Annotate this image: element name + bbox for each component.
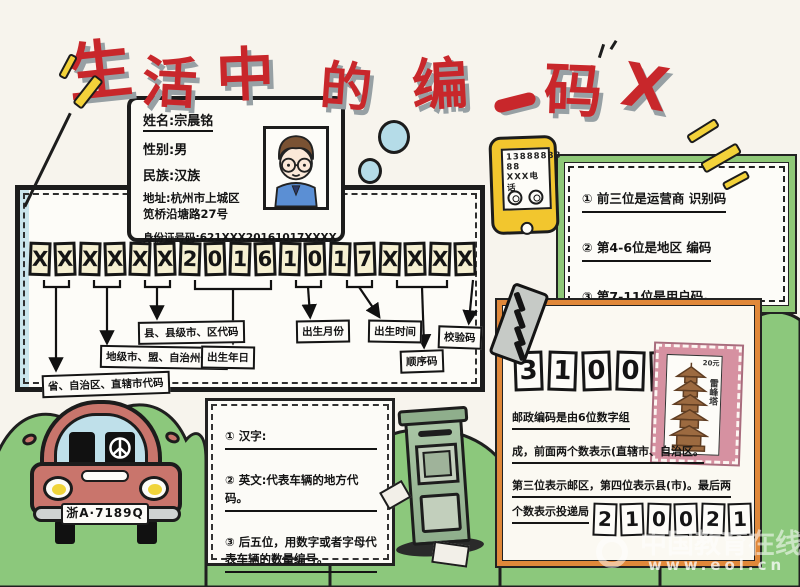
postal-digit-box: 0 [646, 503, 671, 537]
digit-group-label: 顺序码 [400, 349, 444, 374]
postal-digit-box: 0 [581, 351, 611, 392]
postal-digit-box: 1 [727, 503, 752, 537]
plate-note-line: ① 汉字: [225, 428, 377, 450]
mailbox-door [419, 493, 462, 534]
boy-avatar [266, 129, 326, 207]
car-grille [81, 470, 129, 482]
digit-box: X [28, 242, 51, 277]
digit-group-label: 出生时间 [368, 320, 422, 344]
phone-app-icon [528, 189, 544, 205]
postal-description-line: 成，前面两个数表示(直辖市、自治区。 [512, 443, 704, 464]
title-char: 活 [141, 55, 199, 113]
sparkle-icon [686, 118, 720, 144]
postal-description-line: 邮政编码是由6位数字组 [512, 409, 630, 430]
id-card-address: 地址:杭州市上城区 笕桥沿塘路27号 [143, 191, 271, 222]
stamp-price: 20元 [703, 358, 720, 369]
digit-box: X [378, 242, 401, 277]
id-digit-row: XXXXXX20161017XXXX [29, 242, 476, 276]
digit-box: 0 [203, 242, 226, 277]
mobile-note-line: ② 第4-6位是地区 编码 [582, 237, 711, 262]
phone-screen: 13888888 88 XXX电话 [501, 147, 552, 211]
digit-box: 1 [228, 242, 251, 277]
digit-group-label: 出生月份 [296, 320, 350, 344]
hand-drawn-poster: 生活中的编码 X [0, 0, 800, 587]
postal-digit-box: 2 [592, 503, 617, 537]
mobile-phone: 13888888 88 XXX电话 [488, 135, 559, 235]
digit-box: X [53, 242, 76, 277]
car-headlight [139, 476, 169, 501]
mobile-note-line: ① 前三位是运营商 识别码 [582, 188, 726, 213]
mobile-code-box: ① 前三位是运营商 识别码② 第4-6位是地区 编码③ 第7-11位是用户码。 [558, 156, 795, 312]
digit-box: 6 [253, 242, 276, 277]
plate-code-box: ① 汉字:② 英文:代表车辆的地方代码。③ 后五位，用数字或者字母代表车辆的数量… [205, 398, 395, 566]
plate-note-line: ② 英文:代表车辆的地方代码。 [225, 472, 377, 512]
car-drawing: 浙A·7189Q [25, 392, 190, 550]
bubble-doodle [378, 120, 410, 154]
digit-box: X [453, 242, 476, 277]
postal-description-line: 第三位表示邮区，第四位表示县(市)。最后两 [512, 477, 731, 498]
digit-box: 2 [178, 242, 201, 277]
mailbox-drawing [382, 405, 493, 574]
postal-digit-box: 1 [619, 503, 644, 537]
stamp-name: 雷峰塔 [706, 378, 720, 405]
license-plate: 浙A·7189Q [61, 503, 149, 525]
digit-box: 7 [353, 242, 376, 277]
postal-code-box: 310000 20元 雷峰塔 邮政编码是由6位数字 [497, 300, 760, 566]
id-card-number: 身份证号码:621XXX20161017XXXX [143, 230, 331, 245]
title-char: 中 [215, 45, 275, 105]
id-card: 姓名:宗晨铭 性别:男 民族:汉族 地址:杭州市上城区 笕桥沿塘路27号 身份证… [127, 96, 345, 242]
phone-app-icon [507, 190, 523, 206]
car-headlight [43, 476, 73, 501]
digit-group-label: 出生年日 [201, 346, 255, 370]
postal-bottom-row: 个数表示投递局 210021 [512, 503, 752, 536]
title-char: 的 [318, 60, 374, 116]
mobile-code-notes: ① 前三位是运营商 识别码② 第4-6位是地区 编码③ 第7-11位是用户码。 [568, 166, 785, 302]
digit-box: X [428, 242, 451, 277]
digit-box: X [153, 242, 176, 277]
digit-box: X [403, 242, 426, 277]
car-mirror [20, 431, 38, 447]
digit-group-label: 县、县级市、区代码 [138, 320, 245, 345]
postal-digit-box: 2 [700, 503, 725, 537]
postal-description-line: 个数表示投递局 [512, 503, 589, 524]
title-cross-mark: X [617, 54, 673, 121]
title-char: 码 [543, 61, 603, 121]
postal-digit-box: 0 [615, 351, 645, 392]
pen-tick [610, 40, 618, 50]
phone-number-line: 13888888 [506, 151, 545, 163]
envelope-icon [431, 541, 470, 568]
digit-box: 1 [328, 242, 351, 277]
mailbox-panel-window [422, 450, 452, 478]
title-dash-stroke [493, 91, 537, 114]
digit-box: 1 [278, 242, 301, 277]
digit-group-label: 校验码 [438, 325, 482, 350]
car-mirror [163, 429, 181, 445]
id-card-address-line1: 地址:杭州市上城区 [143, 191, 240, 205]
id-card-address-line2: 笕桥沿塘路27号 [143, 207, 228, 221]
steering-wheel-icon [108, 436, 132, 460]
postal-digit-box: 1 [547, 351, 577, 392]
plate-code-notes: ① 汉字:② 英文:代表车辆的地方代码。③ 后五位，用数字或者字母代表车辆的数量… [211, 404, 389, 560]
postal-description: 邮政编码是由6位数字组成，前面两个数表示(直辖市、自治区。第三位表示邮区，第四位… [512, 409, 758, 498]
title-char: 编 [411, 57, 470, 116]
digit-box: X [128, 242, 151, 277]
postal-digit-box: 0 [673, 503, 698, 537]
digit-box: 0 [303, 242, 326, 277]
pen-tick [598, 44, 605, 58]
id-card-photo [263, 126, 329, 210]
postal-code-row-bottom: 210021 [593, 503, 752, 536]
digit-box: X [103, 242, 126, 277]
phone-home-button [520, 222, 533, 235]
digit-box: X [78, 242, 101, 277]
bubble-doodle [358, 158, 382, 184]
plate-note-line: ③ 后五位，用数字或者字母代表车辆的数量编号。 [225, 534, 377, 574]
